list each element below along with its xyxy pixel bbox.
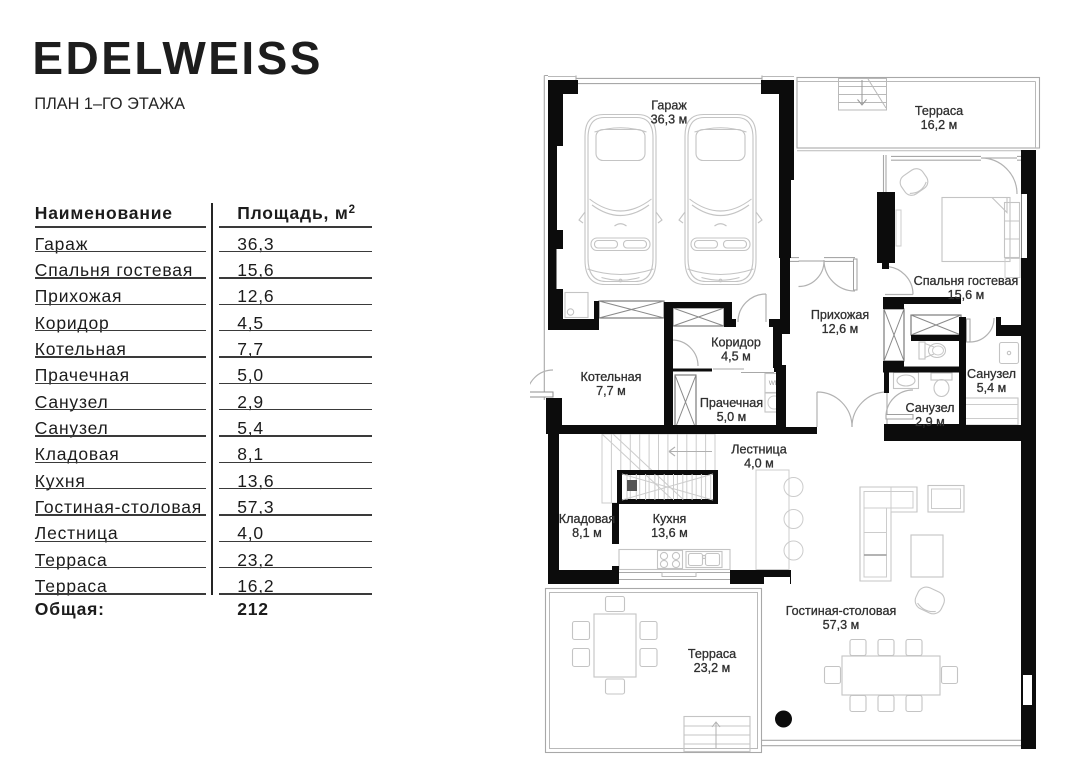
svg-text:Терраса: Терраса [915, 104, 963, 118]
svg-text:Лестница: Лестница [731, 443, 787, 457]
svg-text:Коридор: Коридор [711, 336, 761, 350]
svg-text:Санузел: Санузел [967, 367, 1016, 381]
svg-text:5,0 м: 5,0 м [717, 410, 747, 424]
svg-text:4,5 м: 4,5 м [721, 350, 751, 364]
svg-text:Прачечная: Прачечная [700, 396, 763, 410]
svg-text:Прихожая: Прихожая [811, 308, 869, 322]
svg-text:Спальня гостевая: Спальня гостевая [914, 274, 1019, 288]
svg-text:Гараж: Гараж [651, 99, 687, 113]
svg-text:Гостиная-столовая: Гостиная-столовая [786, 604, 897, 618]
svg-text:13,6 м: 13,6 м [651, 526, 688, 540]
svg-text:7,7 м: 7,7 м [596, 384, 626, 398]
svg-text:36,3 м: 36,3 м [651, 113, 688, 127]
svg-text:8,1 м: 8,1 м [572, 526, 602, 540]
svg-text:15,6 м: 15,6 м [948, 288, 985, 302]
svg-text:5,4 м: 5,4 м [977, 381, 1007, 395]
svg-text:2,9 м: 2,9 м [915, 415, 945, 429]
svg-text:Кухня: Кухня [653, 512, 687, 526]
svg-text:23,2 м: 23,2 м [694, 661, 731, 675]
svg-text:Санузел: Санузел [905, 401, 954, 415]
svg-text:57,3 м: 57,3 м [823, 618, 860, 632]
svg-text:Кладовая: Кладовая [559, 512, 615, 526]
svg-text:16,2 м: 16,2 м [921, 118, 958, 132]
svg-text:12,6 м: 12,6 м [822, 322, 859, 336]
svg-text:Котельная: Котельная [581, 370, 642, 384]
svg-text:Терраса: Терраса [688, 647, 736, 661]
svg-text:4,0 м: 4,0 м [744, 457, 774, 471]
